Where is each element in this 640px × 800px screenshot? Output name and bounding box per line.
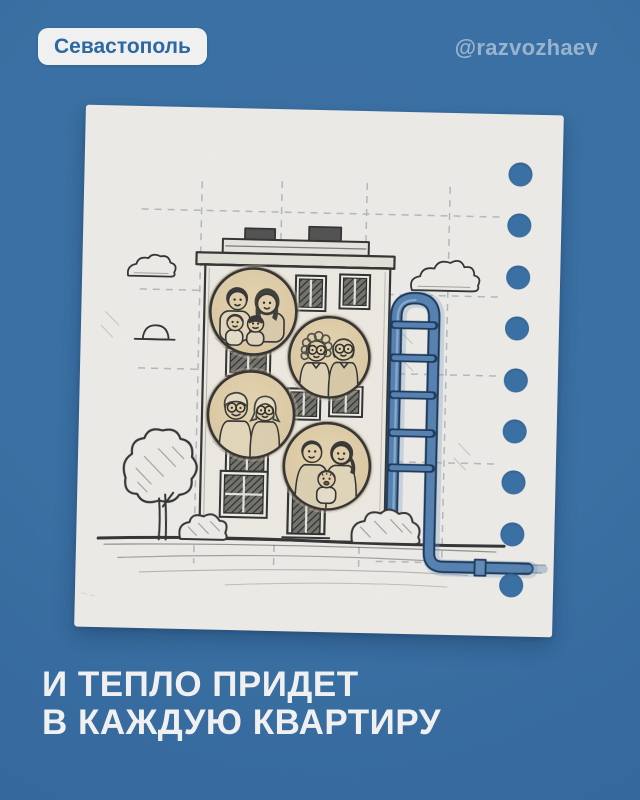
poster: { "page": { "background_color": "#3e77ae… bbox=[0, 0, 640, 800]
city-badge: Севастополь bbox=[38, 28, 207, 65]
pipe-flange bbox=[474, 560, 485, 576]
punch-hole bbox=[506, 265, 531, 290]
city-badge-label: Севастополь bbox=[54, 35, 191, 59]
author-handle[interactable]: @razvozhaev bbox=[455, 35, 598, 61]
caption: И ТЕПЛО ПРИДЕТ В КАЖДУЮ КВАРТИРУ bbox=[42, 666, 441, 742]
caption-line-2: В КАЖДУЮ КВАРТИРУ bbox=[42, 704, 441, 742]
punch-hole bbox=[500, 522, 525, 547]
caption-line-1: И ТЕПЛО ПРИДЕТ bbox=[42, 666, 441, 704]
note-card bbox=[74, 105, 564, 638]
punch-hole bbox=[504, 368, 529, 393]
sketch-illustration bbox=[74, 105, 564, 638]
